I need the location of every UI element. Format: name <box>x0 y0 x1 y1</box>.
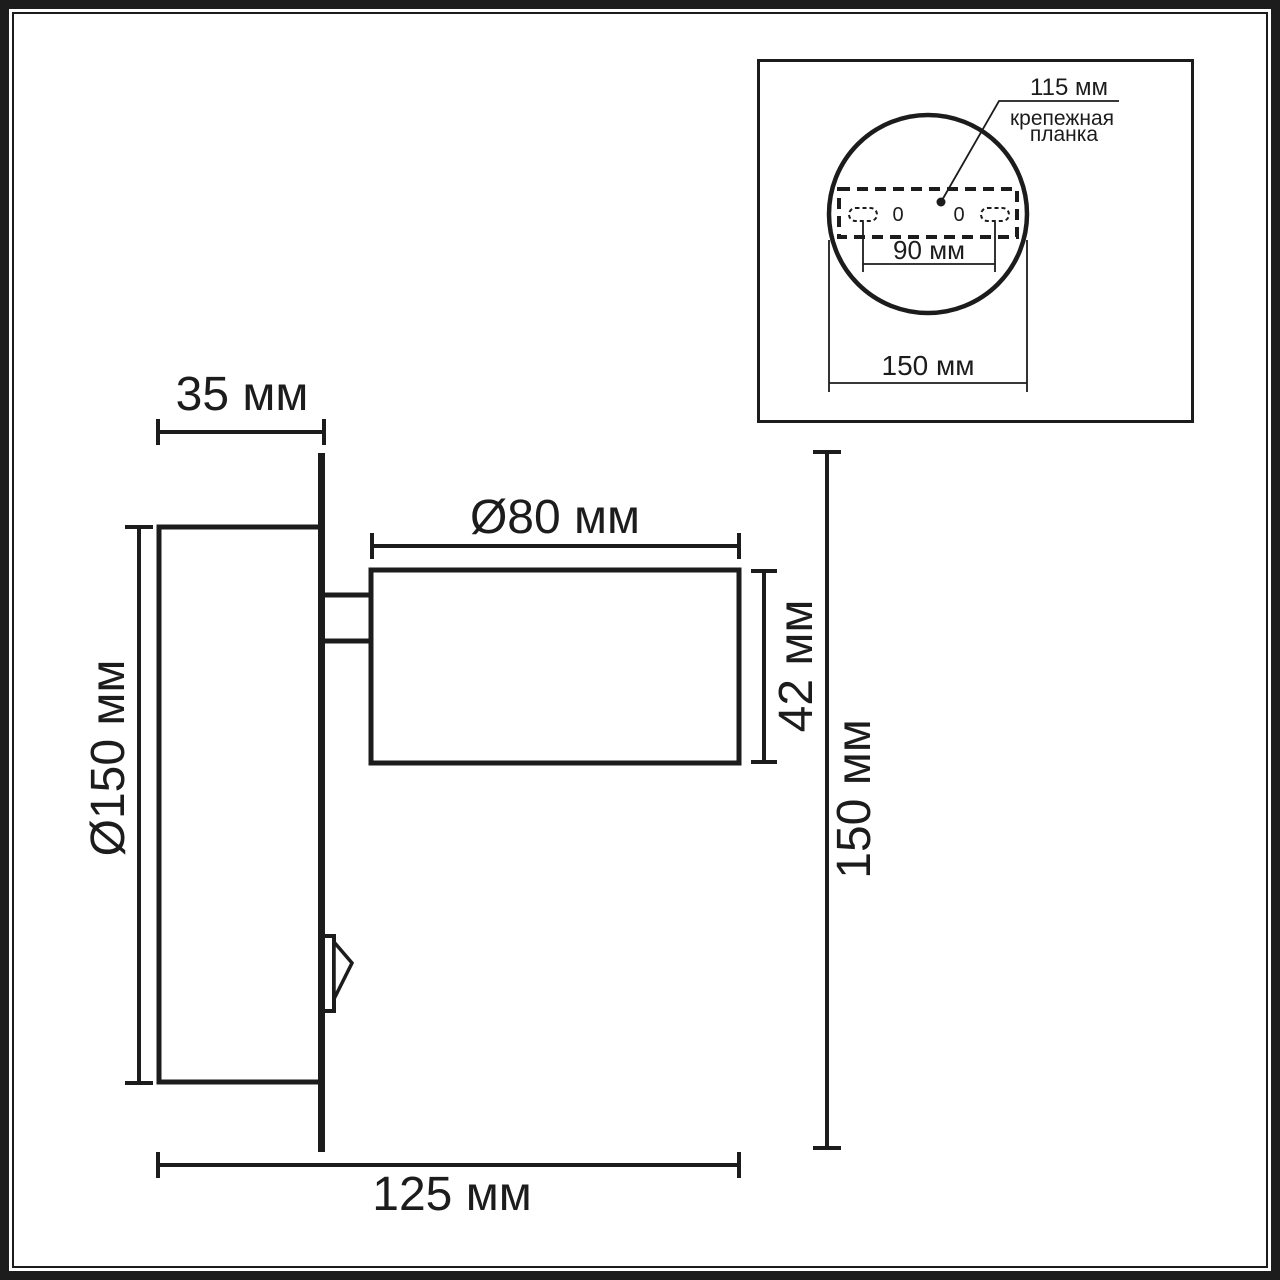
dimension-head-length: 42 мм <box>751 571 823 762</box>
dimension-plate-diameter: Ø150 мм <box>82 527 153 1083</box>
bracket-width-label: 115 мм <box>1030 74 1108 101</box>
mounting-slot-left <box>849 208 877 221</box>
dimension-plate-depth-label: 35 мм <box>176 368 309 421</box>
wall-lamp-dimension-drawing: 35 мм Ø150 мм Ø80 мм 42 мм <box>0 0 1280 1280</box>
dimension-overall-height: 150 мм <box>813 452 881 1148</box>
dimension-hole-spacing-label: 90 мм <box>893 235 965 265</box>
mounting-slot-right <box>981 208 1009 221</box>
dimension-overall-width-label: 125 мм <box>372 1168 531 1221</box>
technical-drawing-canvas: 35 мм Ø150 мм Ø80 мм 42 мм <box>0 0 1280 1280</box>
toggle-switch-lever <box>334 942 352 999</box>
dimension-plate-diameter-label: Ø150 мм <box>82 660 135 857</box>
toggle-switch <box>323 936 352 1011</box>
hole-mark-left: 0 <box>892 204 903 226</box>
dimension-head-diameter-label: Ø80 мм <box>470 491 640 544</box>
dimension-overall-height-label: 150 мм <box>828 719 881 878</box>
dimension-head-diameter: Ø80 мм <box>372 491 739 559</box>
bracket-name-line2: планка <box>1030 123 1099 146</box>
dimension-head-length-label: 42 мм <box>770 600 823 733</box>
spot-head <box>371 570 739 763</box>
dimension-plate-depth: 35 мм <box>158 368 324 445</box>
side-view: 35 мм Ø150 мм Ø80 мм 42 мм <box>82 368 881 1221</box>
dimension-base-diameter-label: 150 мм <box>882 350 975 381</box>
hole-mark-right: 0 <box>953 204 964 226</box>
base-body <box>159 527 322 1082</box>
dimension-overall-width: 125 мм <box>158 1152 739 1221</box>
inset-back-view: 0 0 115 мм крепежная планка 90 мм 150 м <box>759 61 1193 422</box>
